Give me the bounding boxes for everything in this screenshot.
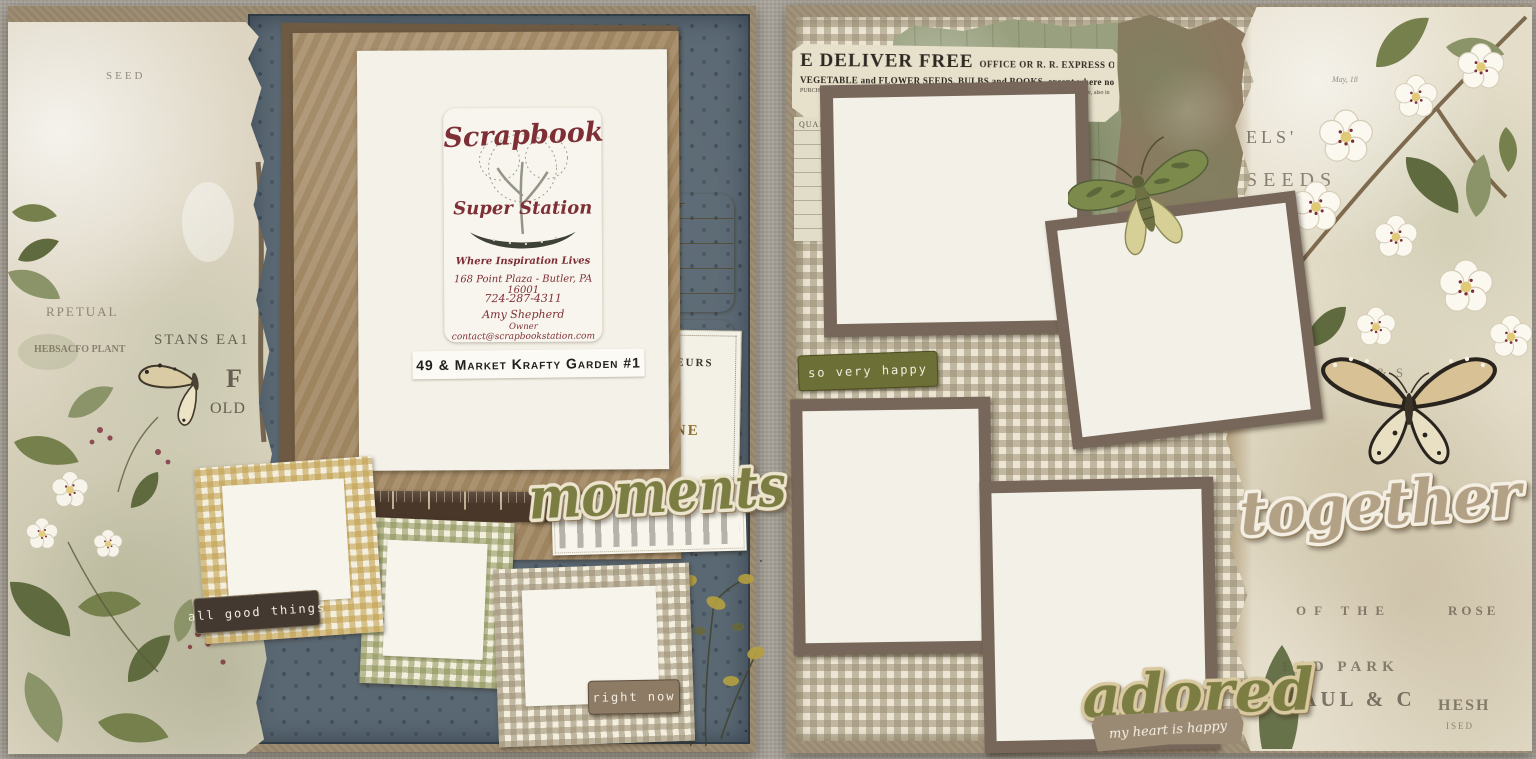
photo-placeholder: [802, 409, 981, 643]
stencil-text-fragment: HESH: [1438, 697, 1490, 715]
photo-frame-green-gingham: [359, 517, 514, 689]
kit-name-label: 49 & Market Krafty Garden #1: [412, 349, 644, 380]
faded-text-fragment: STANS EA1: [154, 332, 250, 349]
catalog-headline: E DELIVER FREE: [800, 50, 974, 73]
faded-text-fragment: ISED: [1446, 721, 1474, 731]
tag-so-very-happy: so very happy: [797, 351, 938, 392]
business-card: Scrapbook Super Station Where Inspiratio…: [443, 108, 602, 343]
left-scrapbook-page: 1905 x — x — FLEURS INE RIS: [8, 6, 756, 752]
faded-text-fragment: F: [226, 364, 242, 394]
card-email: contact@scrapbookstation.com: [444, 332, 602, 343]
photo-frame-taupe-gingham: [493, 563, 695, 748]
large-white-photo-mat: Scrapbook Super Station Where Inspiratio…: [357, 49, 669, 471]
photo-placeholder: [222, 479, 351, 606]
right-scrapbook-page: QUANTITY. PRICE. E DELIVER FREE OFFICE O…: [786, 5, 1532, 753]
torn-botanical-paper-strip: SEED RPETUAL HEBSACFO PLANT STANS EA1 F …: [8, 22, 272, 754]
scrapbook-layout-photo: 1905 x — x — FLEURS INE RIS: [0, 0, 1536, 759]
card-tagline: Where Inspiration Lives: [444, 256, 602, 268]
card-title: Scrapbook: [443, 117, 602, 154]
card-owner-name: Amy Shepherd: [444, 308, 602, 322]
faded-text-fragment: SEED: [106, 70, 146, 82]
green-moth-illustration: [1068, 135, 1218, 263]
photo-mat-bottom-left: [790, 397, 994, 656]
catalog-headline-rest: OFFICE OR R. R. EXPRESS OFFICE IN THE UN…: [980, 59, 1115, 71]
photo-mat-top-left: [820, 81, 1092, 338]
faded-text-fragment: RPETUAL: [46, 304, 119, 320]
word-art-text: together: [1237, 460, 1527, 550]
word-art-together: together: [1227, 423, 1536, 579]
card-subtitle: Super Station: [444, 198, 602, 220]
photo-placeholder: [383, 540, 488, 660]
word-art-text: moments: [527, 451, 788, 532]
faded-text-fragment: OLD: [210, 400, 246, 418]
photo-placeholder: [833, 94, 1079, 324]
stencil-text-fragment: ROSE: [1448, 603, 1499, 619]
card-phone: 724-287-4311: [444, 292, 602, 306]
small-butterfly-illustration: [138, 357, 206, 431]
canoe-shape: [470, 232, 576, 249]
stencil-text-fragment: OF THE: [1296, 603, 1392, 619]
tag-right-now: right now: [588, 679, 681, 715]
faded-text-fragment: HEBSACFO PLANT: [34, 344, 125, 355]
word-art-moments: moments: [517, 423, 801, 555]
